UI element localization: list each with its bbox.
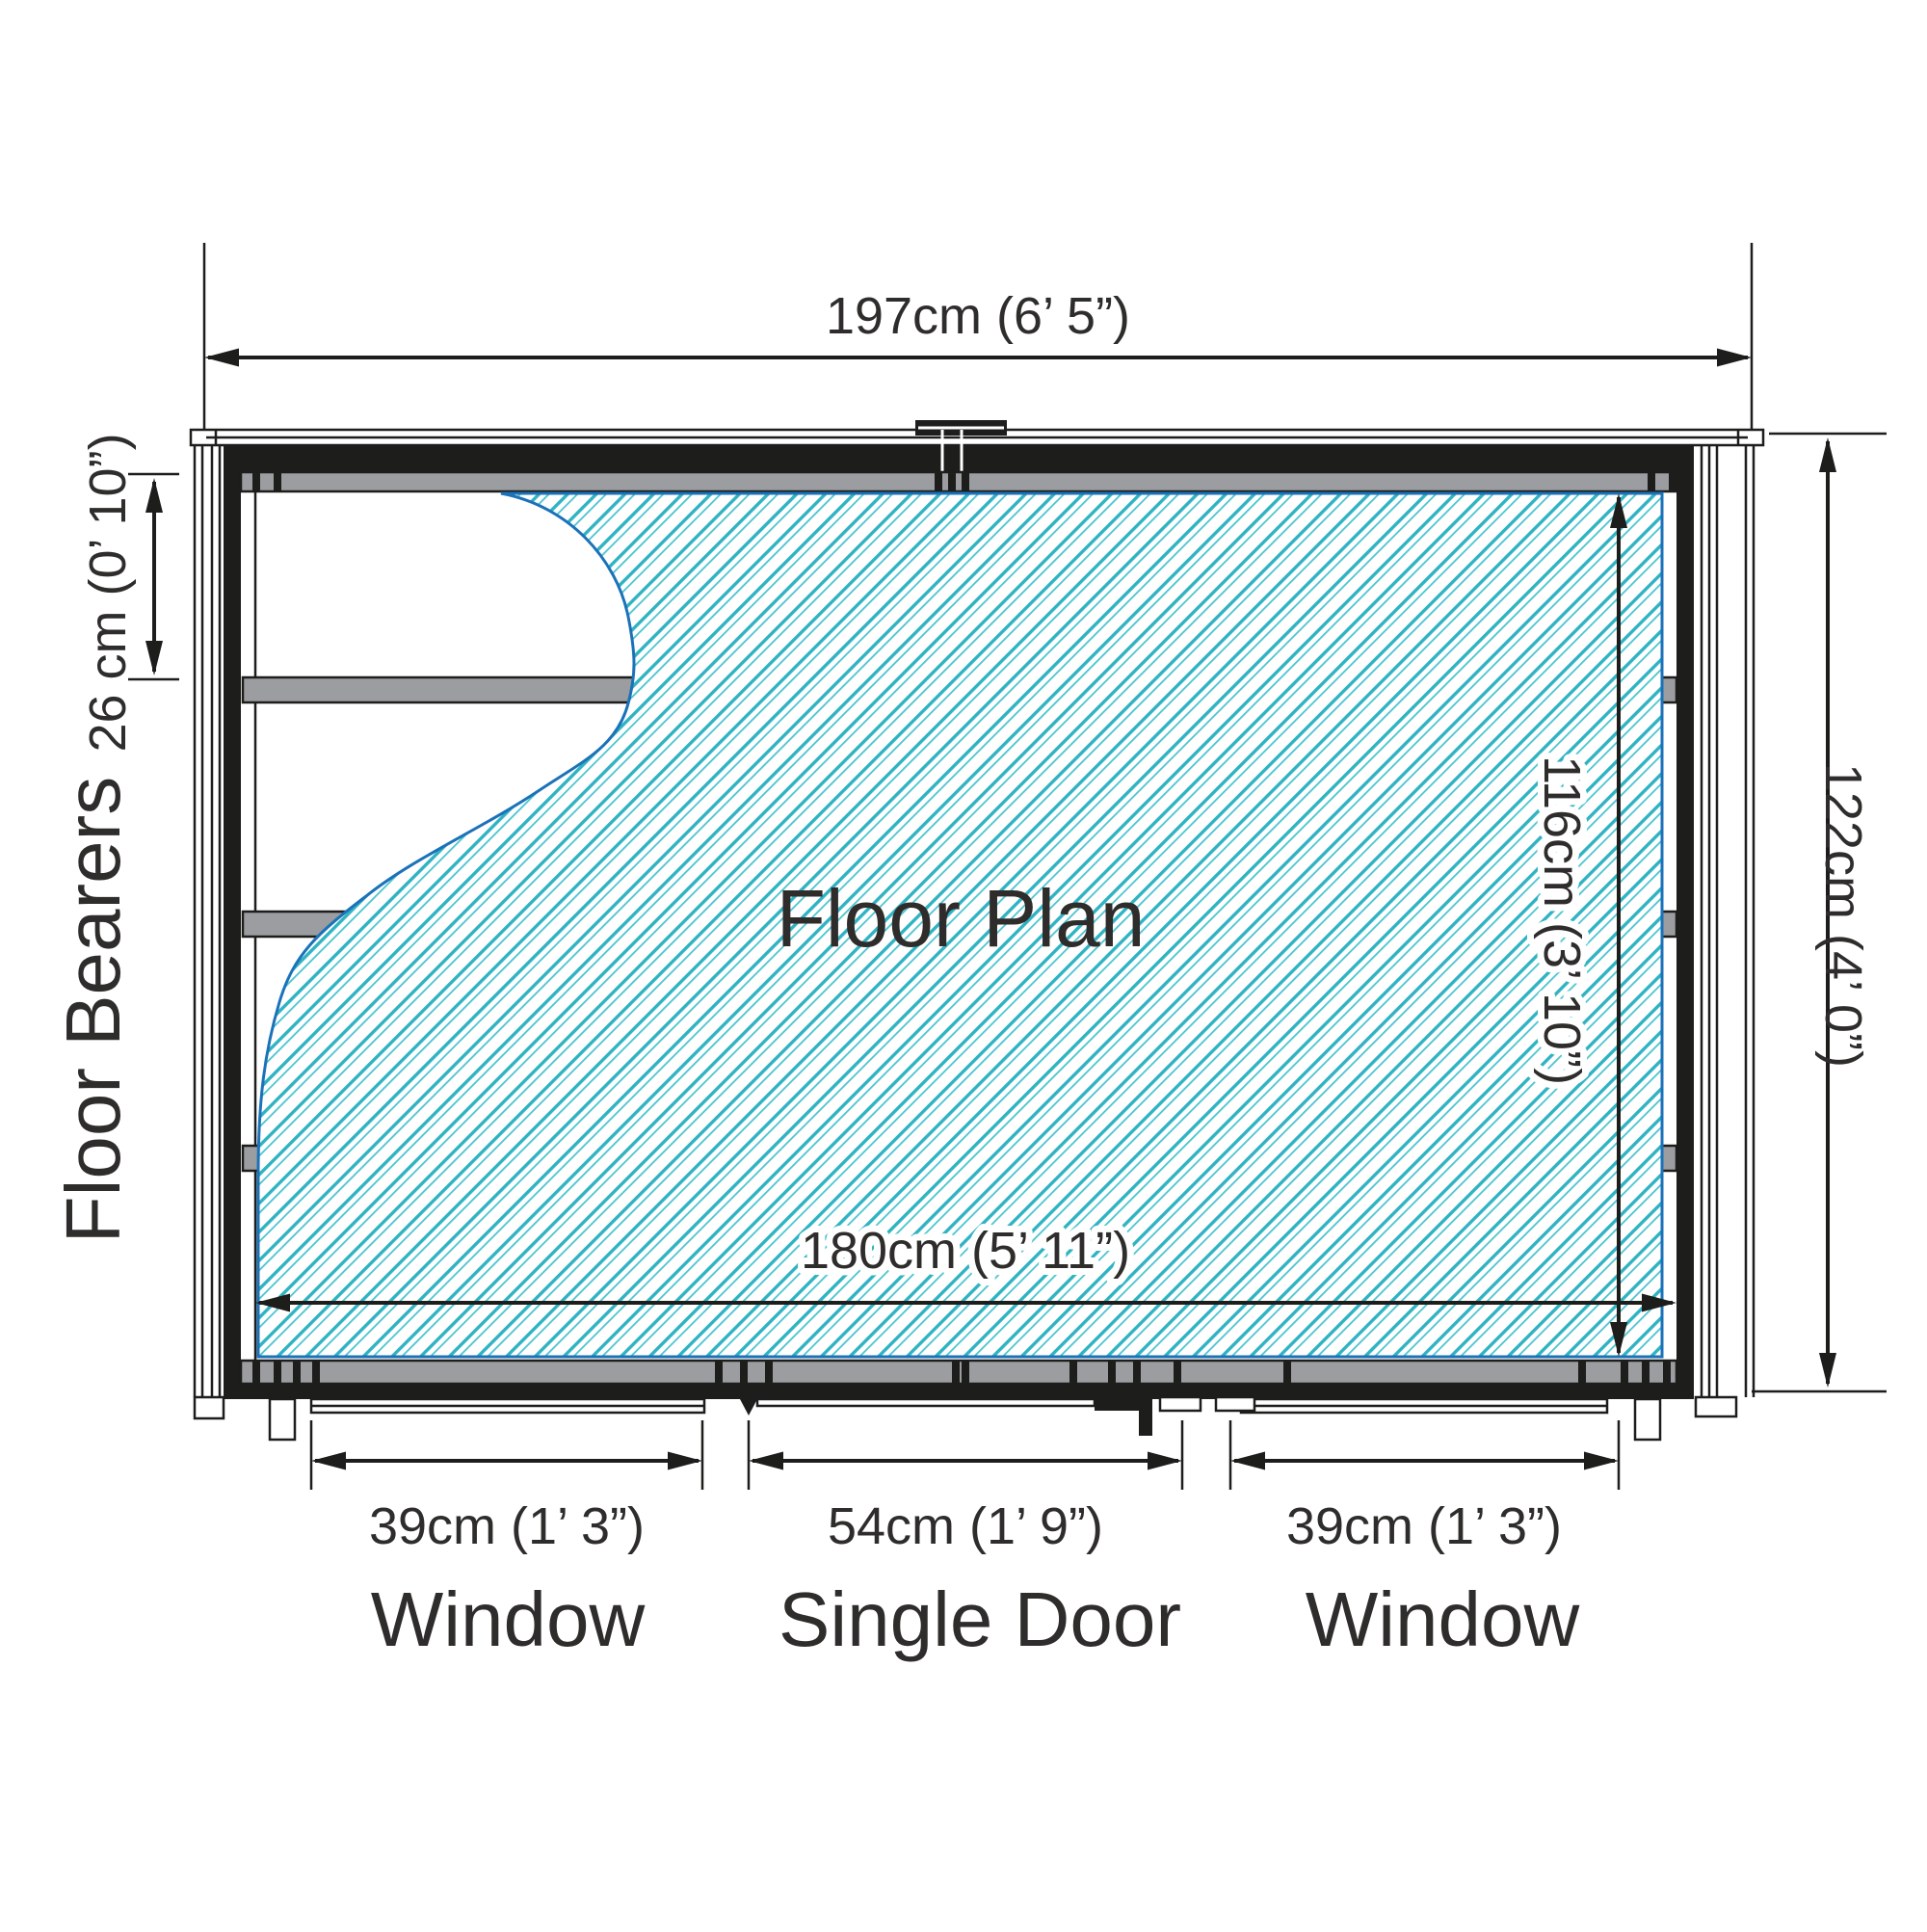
door-latch-plate — [1160, 1397, 1201, 1411]
door-leaf — [757, 1399, 1095, 1406]
overall-depth-dimension: 122cm (4’ 0”) — [1814, 763, 1872, 1068]
right-wall-cladding — [1702, 445, 1754, 1397]
floor-plan-page: 197cm (6’ 5”) 180cm (5’ 11 — [0, 0, 1927, 1927]
door-size: 54cm (1’ 9”) — [828, 1497, 1103, 1555]
door-latch-plate — [1216, 1397, 1254, 1411]
internal-depth-dimension: 116cm (3’ 10”) — [1533, 755, 1591, 1085]
window-left-label: Window — [371, 1576, 646, 1662]
dim-overall-width: 197cm (6’ 5”) — [204, 243, 1752, 430]
dim-window-left: 39cm (1’ 3”) — [311, 1420, 702, 1555]
window-right-size: 39cm (1’ 3”) — [1286, 1497, 1562, 1555]
dim-window-right: 39cm (1’ 3”) — [1230, 1420, 1619, 1555]
floor-plan-drawing: 197cm (6’ 5”) 180cm (5’ 11 — [0, 0, 1927, 1927]
dimension-extension-lines — [311, 1420, 702, 1490]
overall-width-dimension: 197cm (6’ 5”) — [826, 287, 1130, 345]
top-bearer-band — [241, 472, 1676, 491]
door-label: Single Door — [779, 1576, 1181, 1662]
floor-plan-title: Floor Plan — [777, 873, 1146, 964]
window-left-size: 39cm (1’ 3”) — [369, 1497, 645, 1555]
left-wall-cladding — [195, 445, 220, 1397]
window-right-label: Window — [1306, 1576, 1580, 1662]
floor-bearers-label: Floor Bearers — [50, 777, 136, 1244]
bearer-spacing-dimension: 26 cm (0’ 10”) — [79, 433, 137, 752]
door-hinge-mark — [740, 1399, 757, 1416]
dimension-extension-lines — [749, 1420, 1182, 1490]
dim-bearer-spacing: 26 cm (0’ 10”) — [79, 433, 179, 752]
dim-single-door: 54cm (1’ 9”) — [749, 1420, 1182, 1555]
openings-detail — [195, 1395, 1736, 1440]
door-lock-bolt — [1139, 1395, 1152, 1436]
internal-width-dimension: 180cm (5’ 11”) — [801, 1222, 1130, 1280]
door-lock-body — [1095, 1395, 1139, 1411]
dimension-extension-lines — [1230, 1420, 1619, 1490]
dim-overall-depth: 122cm (4’ 0”) — [1752, 434, 1887, 1391]
